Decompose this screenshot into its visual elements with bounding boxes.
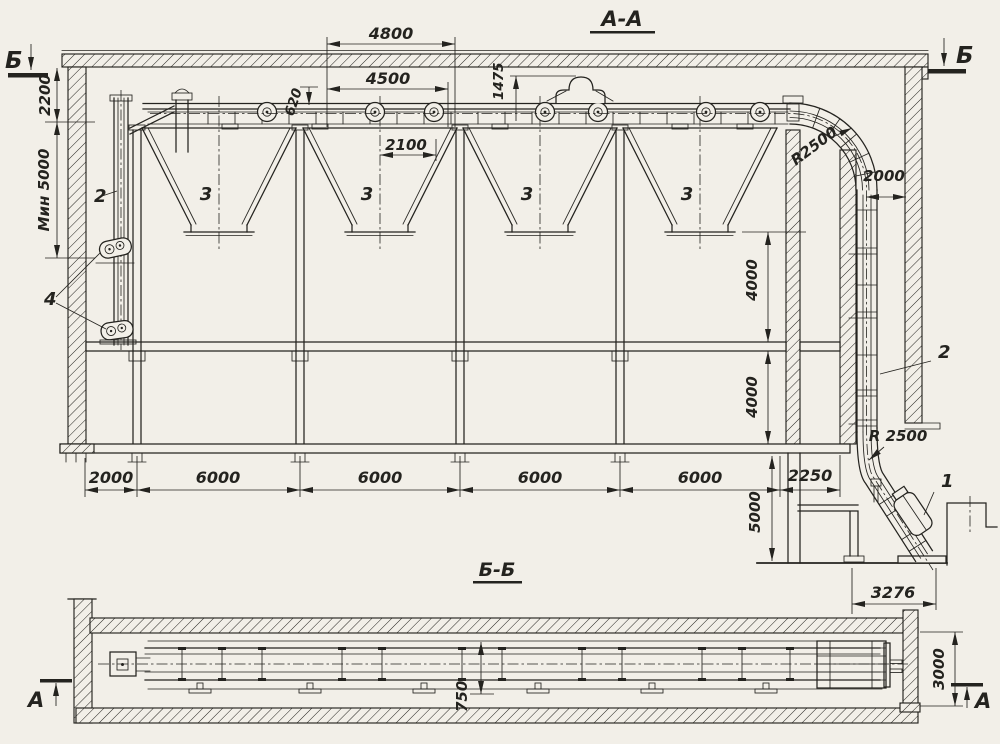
conveyor-roller (751, 103, 770, 122)
tunnel-right-foot (900, 703, 920, 712)
middle-floor-right (800, 342, 840, 351)
section-mark-a-right: А (951, 683, 991, 713)
drawing-sheet: 4800 4500 620 1475 2100 2200 Мин 5000 20… (0, 0, 1000, 744)
view-title-aa: А-А (599, 7, 642, 31)
column (291, 125, 309, 462)
cross-tie (578, 647, 586, 681)
view-title-bb: Б-Б (479, 559, 516, 581)
part-label-1: 1 (941, 471, 954, 492)
support-foot (413, 683, 435, 693)
dim-chain-6000: 6000 (678, 468, 723, 487)
dim-750: 750 (453, 681, 471, 712)
support-foot (189, 683, 211, 693)
top-conveyor (130, 77, 803, 152)
dim-4000-lower: 4000 (743, 376, 761, 419)
tunnel-left-wall (74, 599, 92, 723)
technical-drawing: 4800 4500 620 1475 2100 2200 Мин 5000 20… (0, 0, 1000, 744)
dimensions-aa: 4800 4500 620 1475 2100 2200 Мин 5000 20… (35, 24, 936, 614)
part-label-3: 3 (200, 184, 213, 205)
section-mark-b-left: Б (5, 44, 48, 78)
left-wall (68, 67, 86, 444)
tunnel-right-wall (903, 610, 918, 709)
shaft-wall-left (786, 130, 800, 444)
part-label-3: 3 (681, 184, 694, 205)
dim-chain-2000: 2000 (89, 468, 134, 487)
drive-station (817, 641, 902, 688)
part-label-2-left: 2 (94, 186, 107, 207)
conveyor-roller (589, 103, 608, 122)
dim-5000: 5000 (746, 491, 764, 533)
columns (128, 125, 629, 462)
column (128, 125, 146, 462)
dim-chain-6000: 6000 (358, 468, 403, 487)
cross-tie (498, 647, 506, 681)
conveyor-roller (697, 103, 716, 122)
hoppers (142, 96, 777, 252)
tension-post (172, 89, 192, 152)
dim-2100: 2100 (385, 136, 427, 154)
column (611, 125, 629, 462)
bottom-floor (60, 444, 850, 453)
dim-3276: 3276 (871, 583, 916, 602)
section-mark-a-left: А (26, 679, 72, 712)
tunnel-structure (68, 599, 920, 723)
support-foot (299, 683, 321, 693)
dim-min-5000: Мин 5000 (35, 149, 53, 232)
section-letter-b: Б (956, 43, 974, 69)
middle-floor (86, 342, 786, 351)
support-foot (527, 683, 549, 693)
tunnel-bottom-wall (76, 708, 918, 723)
section-mark-b-right: Б (928, 38, 974, 74)
support-foot (641, 683, 663, 693)
dim-4800: 4800 (368, 24, 414, 43)
section-letter-a: А (26, 688, 44, 712)
pulley-block-lower (100, 320, 134, 341)
conveyor-roller (258, 103, 277, 122)
conveyor-roller (536, 103, 555, 122)
dim-chain-6000: 6000 (196, 468, 241, 487)
tunnel-conveyor (98, 641, 908, 693)
hopper-centerlines (219, 96, 700, 252)
section-view-aa: 4800 4500 620 1475 2100 2200 Мин 5000 20… (5, 7, 997, 614)
section-view-bb: Б-Б (26, 559, 991, 723)
section-letter-b: Б (5, 48, 23, 74)
conveyor-roller (425, 103, 444, 122)
dim-chain-6000: 6000 (518, 468, 563, 487)
dim-radius-bottom: R 2500 (869, 427, 928, 445)
part-label-2-right: 2 (938, 342, 951, 363)
dim-2000-right: 2000 (863, 167, 905, 185)
dim-4500: 4500 (365, 69, 411, 88)
takeup-tower (96, 90, 136, 350)
part-label-3: 3 (521, 184, 534, 205)
drive-unit (556, 77, 605, 103)
conveyor-roller (366, 103, 385, 122)
dim-3000: 3000 (930, 648, 948, 690)
dim-4000-upper: 4000 (743, 259, 761, 302)
dim-2200: 2200 (36, 74, 54, 116)
part-label-4: 4 (43, 289, 57, 310)
column (451, 125, 469, 462)
feeder-support (798, 479, 881, 562)
section-letter-a: А (973, 689, 991, 713)
support-foot (755, 683, 777, 693)
right-wall (905, 67, 922, 423)
dim-1475: 1475 (491, 62, 507, 100)
dim-chain-2250: 2250 (788, 466, 833, 485)
tunnel-top-wall (90, 618, 918, 633)
part-label-3: 3 (361, 184, 374, 205)
shaft-wall-right (840, 150, 856, 444)
